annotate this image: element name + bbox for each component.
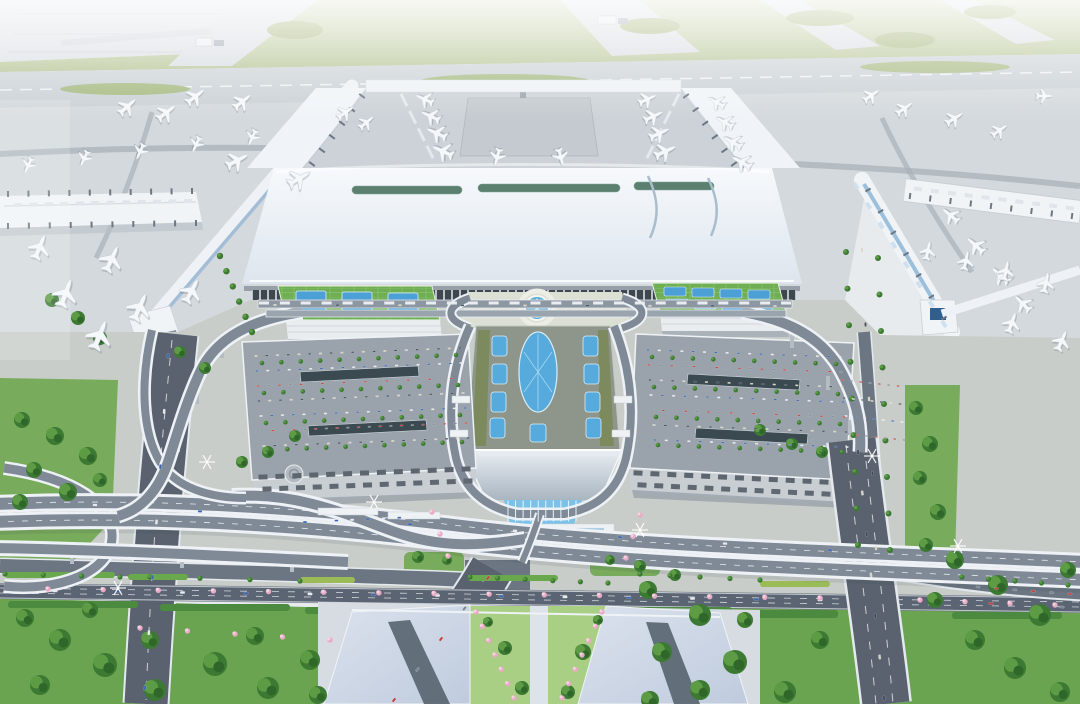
car bbox=[793, 355, 796, 356]
tree bbox=[795, 390, 800, 395]
car bbox=[330, 352, 333, 353]
blossom-tree bbox=[597, 593, 602, 598]
car bbox=[684, 411, 687, 412]
car bbox=[811, 430, 814, 431]
car bbox=[795, 385, 798, 386]
car bbox=[459, 347, 462, 348]
car bbox=[310, 383, 313, 384]
tree bbox=[523, 577, 528, 582]
car bbox=[255, 355, 258, 356]
tree bbox=[717, 445, 722, 450]
gate-tick bbox=[130, 189, 132, 195]
car bbox=[828, 549, 832, 551]
car bbox=[340, 352, 343, 353]
car bbox=[782, 354, 785, 355]
car bbox=[422, 424, 425, 425]
gate-tick bbox=[654, 483, 663, 488]
car bbox=[303, 517, 307, 519]
car bbox=[626, 597, 631, 599]
tree bbox=[297, 578, 302, 583]
gate-tick bbox=[677, 302, 687, 305]
car bbox=[690, 597, 695, 599]
car bbox=[399, 410, 402, 411]
car bbox=[257, 385, 260, 386]
tree-cluster bbox=[257, 677, 279, 699]
gate-tick bbox=[363, 302, 373, 305]
tree bbox=[363, 444, 368, 449]
car bbox=[276, 354, 279, 355]
car bbox=[817, 370, 820, 371]
tree bbox=[797, 420, 802, 425]
car bbox=[343, 397, 346, 398]
car bbox=[754, 428, 757, 429]
gate-tick bbox=[384, 302, 394, 305]
car bbox=[353, 381, 356, 382]
tree bbox=[242, 314, 248, 320]
car bbox=[1013, 589, 1017, 591]
car bbox=[777, 429, 780, 430]
car bbox=[148, 630, 151, 635]
car bbox=[703, 351, 706, 352]
car bbox=[716, 382, 719, 383]
car bbox=[707, 411, 710, 412]
tree bbox=[318, 358, 323, 363]
car bbox=[783, 369, 786, 370]
car bbox=[682, 381, 685, 382]
car bbox=[843, 397, 846, 399]
gate-tick bbox=[786, 478, 795, 483]
car bbox=[676, 440, 679, 441]
tree bbox=[467, 574, 472, 579]
car bbox=[773, 384, 776, 385]
gate-tick bbox=[688, 485, 697, 490]
car bbox=[687, 441, 690, 442]
tree bbox=[322, 418, 327, 423]
car bbox=[720, 427, 723, 428]
car bbox=[303, 429, 306, 430]
car bbox=[772, 369, 775, 370]
car bbox=[167, 354, 170, 359]
car bbox=[462, 392, 465, 393]
car bbox=[314, 428, 317, 429]
car bbox=[730, 412, 733, 413]
blossom-tree bbox=[376, 590, 381, 595]
car bbox=[432, 424, 435, 425]
car bbox=[354, 396, 357, 397]
car bbox=[695, 396, 698, 397]
car bbox=[413, 516, 417, 518]
tree-cluster bbox=[690, 680, 710, 700]
airport-aerial-rendering: Aerial rendering of an airport terminal … bbox=[0, 0, 1080, 704]
gate-tick bbox=[684, 473, 693, 478]
car bbox=[293, 429, 296, 430]
car bbox=[651, 409, 654, 410]
car bbox=[889, 402, 892, 404]
tree bbox=[756, 419, 761, 424]
car bbox=[705, 381, 708, 382]
gate-tick bbox=[91, 201, 99, 205]
gate-tick bbox=[132, 221, 134, 227]
car bbox=[266, 370, 269, 371]
tree bbox=[495, 576, 500, 581]
car bbox=[563, 596, 568, 598]
tree bbox=[691, 356, 696, 361]
car bbox=[880, 401, 883, 403]
gate-tick bbox=[508, 501, 509, 522]
car bbox=[454, 423, 457, 424]
tree-cluster bbox=[246, 627, 264, 645]
car bbox=[743, 428, 746, 429]
car bbox=[356, 411, 359, 412]
tree-cluster bbox=[300, 650, 320, 670]
scene bbox=[0, 0, 1080, 704]
gate-tick bbox=[258, 474, 267, 479]
gate-tick bbox=[111, 221, 113, 227]
tree bbox=[846, 322, 852, 328]
gate-tick bbox=[718, 302, 728, 305]
tree bbox=[667, 573, 672, 578]
tree bbox=[438, 414, 443, 419]
car bbox=[305, 444, 308, 445]
gate-tick bbox=[275, 474, 284, 479]
car bbox=[341, 367, 344, 368]
car bbox=[288, 369, 291, 370]
car bbox=[706, 396, 709, 397]
car bbox=[277, 369, 280, 370]
car bbox=[394, 350, 397, 351]
car bbox=[445, 438, 448, 439]
gate-tick bbox=[701, 474, 710, 479]
tree-cluster bbox=[26, 462, 42, 478]
tree-cluster bbox=[79, 447, 97, 465]
tree bbox=[279, 360, 284, 365]
car bbox=[732, 427, 735, 428]
tree bbox=[419, 414, 424, 419]
car bbox=[333, 397, 336, 398]
gate-tick bbox=[593, 302, 603, 305]
car bbox=[704, 366, 707, 367]
car bbox=[319, 520, 323, 522]
tree-cluster bbox=[593, 615, 603, 625]
tree bbox=[887, 547, 893, 553]
tree-cluster bbox=[1029, 604, 1051, 626]
tree bbox=[434, 354, 439, 359]
gate-tick bbox=[510, 302, 520, 305]
tree-cluster bbox=[689, 604, 711, 626]
tree bbox=[1065, 582, 1070, 587]
blossom-tree bbox=[280, 634, 285, 639]
car bbox=[332, 382, 335, 383]
tree bbox=[697, 574, 702, 579]
car bbox=[1031, 590, 1035, 592]
tree bbox=[264, 421, 269, 426]
gate-tick bbox=[150, 189, 152, 195]
car bbox=[887, 384, 890, 386]
tree bbox=[884, 474, 890, 480]
car bbox=[818, 385, 821, 386]
car bbox=[884, 437, 887, 439]
tree-cluster bbox=[927, 592, 943, 608]
car bbox=[805, 355, 808, 356]
gate-tick bbox=[735, 475, 744, 480]
car bbox=[833, 431, 836, 432]
car bbox=[467, 437, 470, 438]
tree bbox=[752, 359, 757, 364]
car bbox=[370, 441, 373, 442]
gate-tick bbox=[704, 486, 713, 491]
car bbox=[840, 371, 843, 372]
car bbox=[408, 523, 412, 525]
car bbox=[424, 439, 427, 440]
gate-tick bbox=[468, 302, 478, 305]
gate-tick bbox=[538, 501, 539, 522]
tree bbox=[236, 298, 242, 304]
gate-tick bbox=[153, 200, 161, 204]
tree bbox=[877, 292, 883, 298]
gate-tick bbox=[738, 487, 747, 492]
car bbox=[672, 395, 675, 396]
gate-tick bbox=[346, 483, 355, 488]
car bbox=[371, 594, 376, 596]
car bbox=[843, 416, 846, 417]
car bbox=[273, 304, 276, 306]
tree bbox=[656, 443, 661, 448]
car bbox=[658, 350, 661, 351]
gate-tick bbox=[184, 199, 192, 203]
car bbox=[388, 410, 391, 411]
tree bbox=[262, 391, 267, 396]
gate-tick bbox=[771, 489, 780, 494]
car bbox=[263, 445, 266, 446]
tree bbox=[357, 357, 362, 362]
car bbox=[692, 351, 695, 352]
blossom-tree bbox=[566, 681, 571, 686]
tree bbox=[415, 354, 420, 359]
gate-tick bbox=[721, 486, 730, 491]
tree-cluster bbox=[30, 675, 50, 695]
center-spine bbox=[530, 606, 548, 704]
car bbox=[385, 380, 388, 381]
car bbox=[258, 400, 261, 401]
car bbox=[727, 367, 730, 368]
car bbox=[407, 379, 410, 380]
car bbox=[766, 443, 769, 444]
gate-tick bbox=[769, 477, 778, 482]
car bbox=[847, 433, 850, 435]
car bbox=[714, 352, 717, 353]
car bbox=[741, 413, 744, 414]
gate-tick bbox=[560, 501, 561, 522]
car bbox=[763, 413, 766, 414]
tree bbox=[693, 386, 698, 391]
car bbox=[159, 464, 162, 469]
car bbox=[421, 409, 424, 410]
car bbox=[429, 394, 432, 395]
blossom-tree bbox=[321, 590, 326, 595]
car bbox=[749, 368, 752, 369]
blossom-tree bbox=[486, 591, 491, 596]
car bbox=[327, 443, 330, 444]
tree bbox=[848, 359, 854, 365]
roof-skylight-strip bbox=[352, 186, 462, 194]
gate-tick bbox=[279, 486, 288, 491]
car bbox=[378, 411, 381, 412]
tree-cluster bbox=[93, 473, 107, 487]
gate-tick bbox=[671, 484, 680, 489]
gate-tick bbox=[394, 469, 403, 474]
car bbox=[852, 398, 855, 400]
car bbox=[362, 351, 365, 352]
car bbox=[839, 356, 842, 357]
tree bbox=[774, 389, 779, 394]
tree bbox=[695, 416, 700, 421]
car bbox=[710, 441, 713, 442]
tree bbox=[819, 449, 824, 454]
tree bbox=[697, 444, 702, 449]
tree bbox=[852, 469, 858, 475]
car bbox=[873, 418, 876, 420]
car bbox=[325, 428, 328, 429]
blossom-tree bbox=[100, 587, 105, 592]
car bbox=[418, 379, 421, 380]
car bbox=[861, 248, 863, 252]
gate-tick bbox=[697, 302, 707, 305]
car bbox=[397, 517, 401, 519]
gate-tick bbox=[91, 222, 93, 228]
car bbox=[321, 383, 324, 384]
gate-tick bbox=[313, 484, 322, 489]
gate-tick bbox=[343, 471, 352, 476]
car bbox=[721, 442, 724, 443]
tree bbox=[986, 576, 991, 581]
tree-cluster bbox=[93, 653, 117, 677]
car bbox=[799, 430, 802, 431]
car bbox=[439, 378, 442, 379]
car bbox=[345, 412, 348, 413]
tree-cluster bbox=[71, 311, 85, 325]
car bbox=[256, 370, 259, 371]
edge-haze bbox=[0, 100, 70, 360]
gate-tick bbox=[259, 302, 269, 305]
car bbox=[442, 408, 445, 409]
car bbox=[180, 591, 185, 593]
tree bbox=[674, 415, 679, 420]
car bbox=[316, 443, 319, 444]
car bbox=[427, 364, 430, 365]
tree-cluster bbox=[1060, 562, 1076, 578]
tree bbox=[854, 505, 860, 511]
tree bbox=[197, 576, 202, 581]
car bbox=[794, 370, 797, 371]
tree bbox=[454, 353, 459, 358]
car bbox=[397, 395, 400, 396]
tree bbox=[402, 442, 407, 447]
gate-tick bbox=[195, 220, 197, 226]
tree bbox=[283, 420, 288, 425]
distance-haze bbox=[0, 0, 1080, 120]
tree bbox=[815, 391, 820, 396]
tree-cluster bbox=[12, 494, 28, 510]
car bbox=[450, 378, 453, 379]
gate-tick bbox=[523, 501, 524, 522]
gate-tick bbox=[637, 482, 646, 487]
tree bbox=[843, 249, 849, 255]
car bbox=[762, 398, 765, 399]
blossom-tree bbox=[211, 588, 216, 593]
gate-tick bbox=[426, 302, 436, 305]
car bbox=[789, 444, 792, 445]
car bbox=[357, 426, 360, 427]
car bbox=[434, 439, 437, 440]
gate-tick bbox=[447, 302, 457, 305]
gate-tick bbox=[411, 468, 420, 473]
gate-tick bbox=[489, 302, 499, 305]
car bbox=[709, 426, 712, 427]
roof-skylight-strip bbox=[478, 184, 620, 192]
gate-tick bbox=[292, 473, 301, 478]
car bbox=[871, 400, 874, 402]
car bbox=[271, 430, 274, 431]
blossom-tree bbox=[499, 667, 504, 672]
car bbox=[751, 398, 754, 399]
roof-skylight-strip bbox=[634, 182, 714, 190]
tree bbox=[817, 421, 822, 426]
car bbox=[144, 686, 147, 691]
gate-tick bbox=[296, 485, 305, 490]
tree-cluster bbox=[199, 362, 211, 374]
gate-tick bbox=[107, 201, 115, 205]
car bbox=[465, 422, 468, 423]
car bbox=[755, 443, 758, 444]
car bbox=[431, 409, 434, 410]
car bbox=[680, 351, 683, 352]
tree bbox=[320, 388, 325, 393]
gate-tick bbox=[760, 302, 770, 305]
car bbox=[461, 377, 464, 378]
tree bbox=[266, 448, 271, 453]
car bbox=[53, 590, 58, 592]
tree bbox=[605, 580, 610, 585]
blossom-tree bbox=[511, 695, 516, 700]
car bbox=[675, 425, 678, 426]
gate-tick bbox=[122, 200, 130, 204]
car bbox=[363, 366, 366, 367]
car bbox=[693, 366, 696, 367]
gate-tick bbox=[329, 484, 338, 489]
blossom-tree bbox=[623, 555, 628, 560]
car bbox=[752, 413, 755, 414]
car bbox=[278, 384, 281, 385]
car bbox=[464, 407, 467, 408]
gate-tick bbox=[262, 486, 271, 491]
gate-tick bbox=[802, 478, 811, 483]
blossom-tree bbox=[586, 638, 591, 643]
car bbox=[303, 521, 307, 523]
gate-tick bbox=[396, 481, 405, 486]
blossom-tree bbox=[817, 595, 822, 600]
tree bbox=[305, 446, 310, 451]
car bbox=[402, 440, 405, 441]
car bbox=[366, 518, 370, 520]
small-skylight bbox=[530, 424, 546, 442]
tree bbox=[230, 283, 236, 289]
car bbox=[738, 368, 741, 369]
car bbox=[281, 414, 284, 415]
car bbox=[774, 399, 777, 400]
gate-tick bbox=[614, 302, 624, 305]
tree bbox=[382, 443, 387, 448]
car bbox=[331, 367, 334, 368]
